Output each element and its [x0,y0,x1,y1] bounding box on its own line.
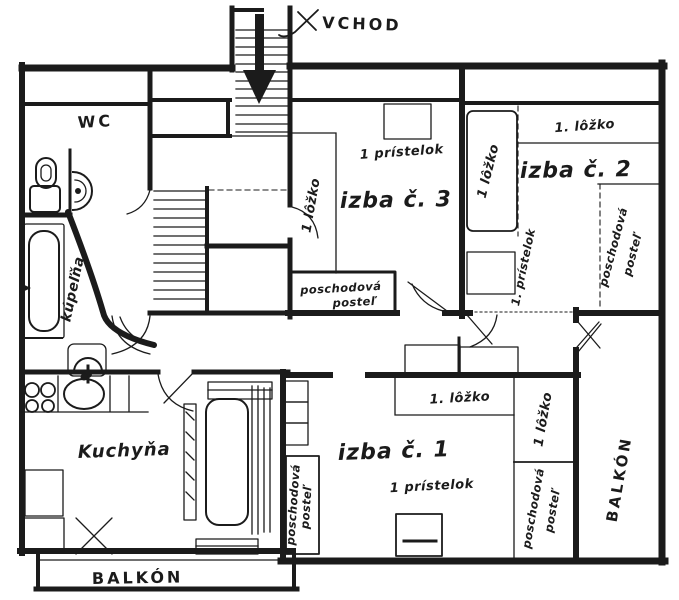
wc-door-swing [127,190,150,214]
kitchen-fixtures [22,374,272,555]
wc-fixtures [30,150,92,216]
wc-label: WC [77,111,113,132]
room1-right-bed-label: 1 lôžko [531,391,555,448]
room1-shelves [284,381,308,445]
kitchen-label: Kuchyňa [77,439,171,463]
room2-left-bed-label: 1 lôžko [475,143,503,200]
room2-label: izba č. 2 [520,157,632,184]
entrance-label: VCHOD [322,13,402,35]
room3-lozko-label: 1 lôžko [299,177,323,234]
room1-top-bed-label: 1. lôžko [429,389,490,407]
room1-bunk-left-label-2: posteľ [297,483,314,530]
room1-bunk-right-label-2: posteľ [541,486,563,534]
room1-pristelok-label: 1 prístelok [389,477,475,496]
balcony-bottom-label: BALKÓN [92,567,184,588]
room2-pristelok-label: 1. prístelok [508,226,538,307]
room1-bunk-right-label-1: poschodová [519,467,547,550]
stove-icon [25,383,55,412]
room3-door-swing [408,282,447,311]
room3-pristelok-bed [384,104,431,139]
corridor-wardrobe [160,311,572,375]
room2-bunk-label-1: poschodová [596,206,631,289]
room2-door-swing [467,315,497,347]
wc-basin-icon [70,150,92,216]
room3-bunk-label-2: posteľ [331,294,378,310]
toilet-icon [30,158,60,212]
inner-stair-steps [154,191,205,299]
room1-label: izba č. 1 [337,437,450,466]
balcony-right-door-swing [577,322,601,352]
room3-pristelok-label: 1 prístelok [359,142,445,163]
room3-label: izba č. 3 [340,187,452,214]
kitchen-sink-icon [64,374,104,410]
room2-pristelok-bed [467,252,515,294]
balcony-right-label: BALKÓN [602,435,636,524]
room1-pristelok-bed [396,514,442,556]
floor-plan-sketch: VCHOD WC kúpeľňa Kuchyňa BALKÓN BALKÓN i… [0,0,679,600]
bathroom-label: kúpeľňa [58,255,87,323]
room2-top-bed-label: 1. lôžko [554,117,615,136]
floor-plan-canvas: VCHOD WC kúpeľňa Kuchyňa BALKÓN BALKÓN i… [0,0,679,600]
room2-bunk-label-2: posteľ [620,230,645,278]
dining-nook [184,382,272,554]
entrance-arrow-icon [243,10,318,104]
room2-furniture [467,106,658,310]
kitchen-door-swing [158,372,194,411]
fridge-icon [24,470,64,552]
